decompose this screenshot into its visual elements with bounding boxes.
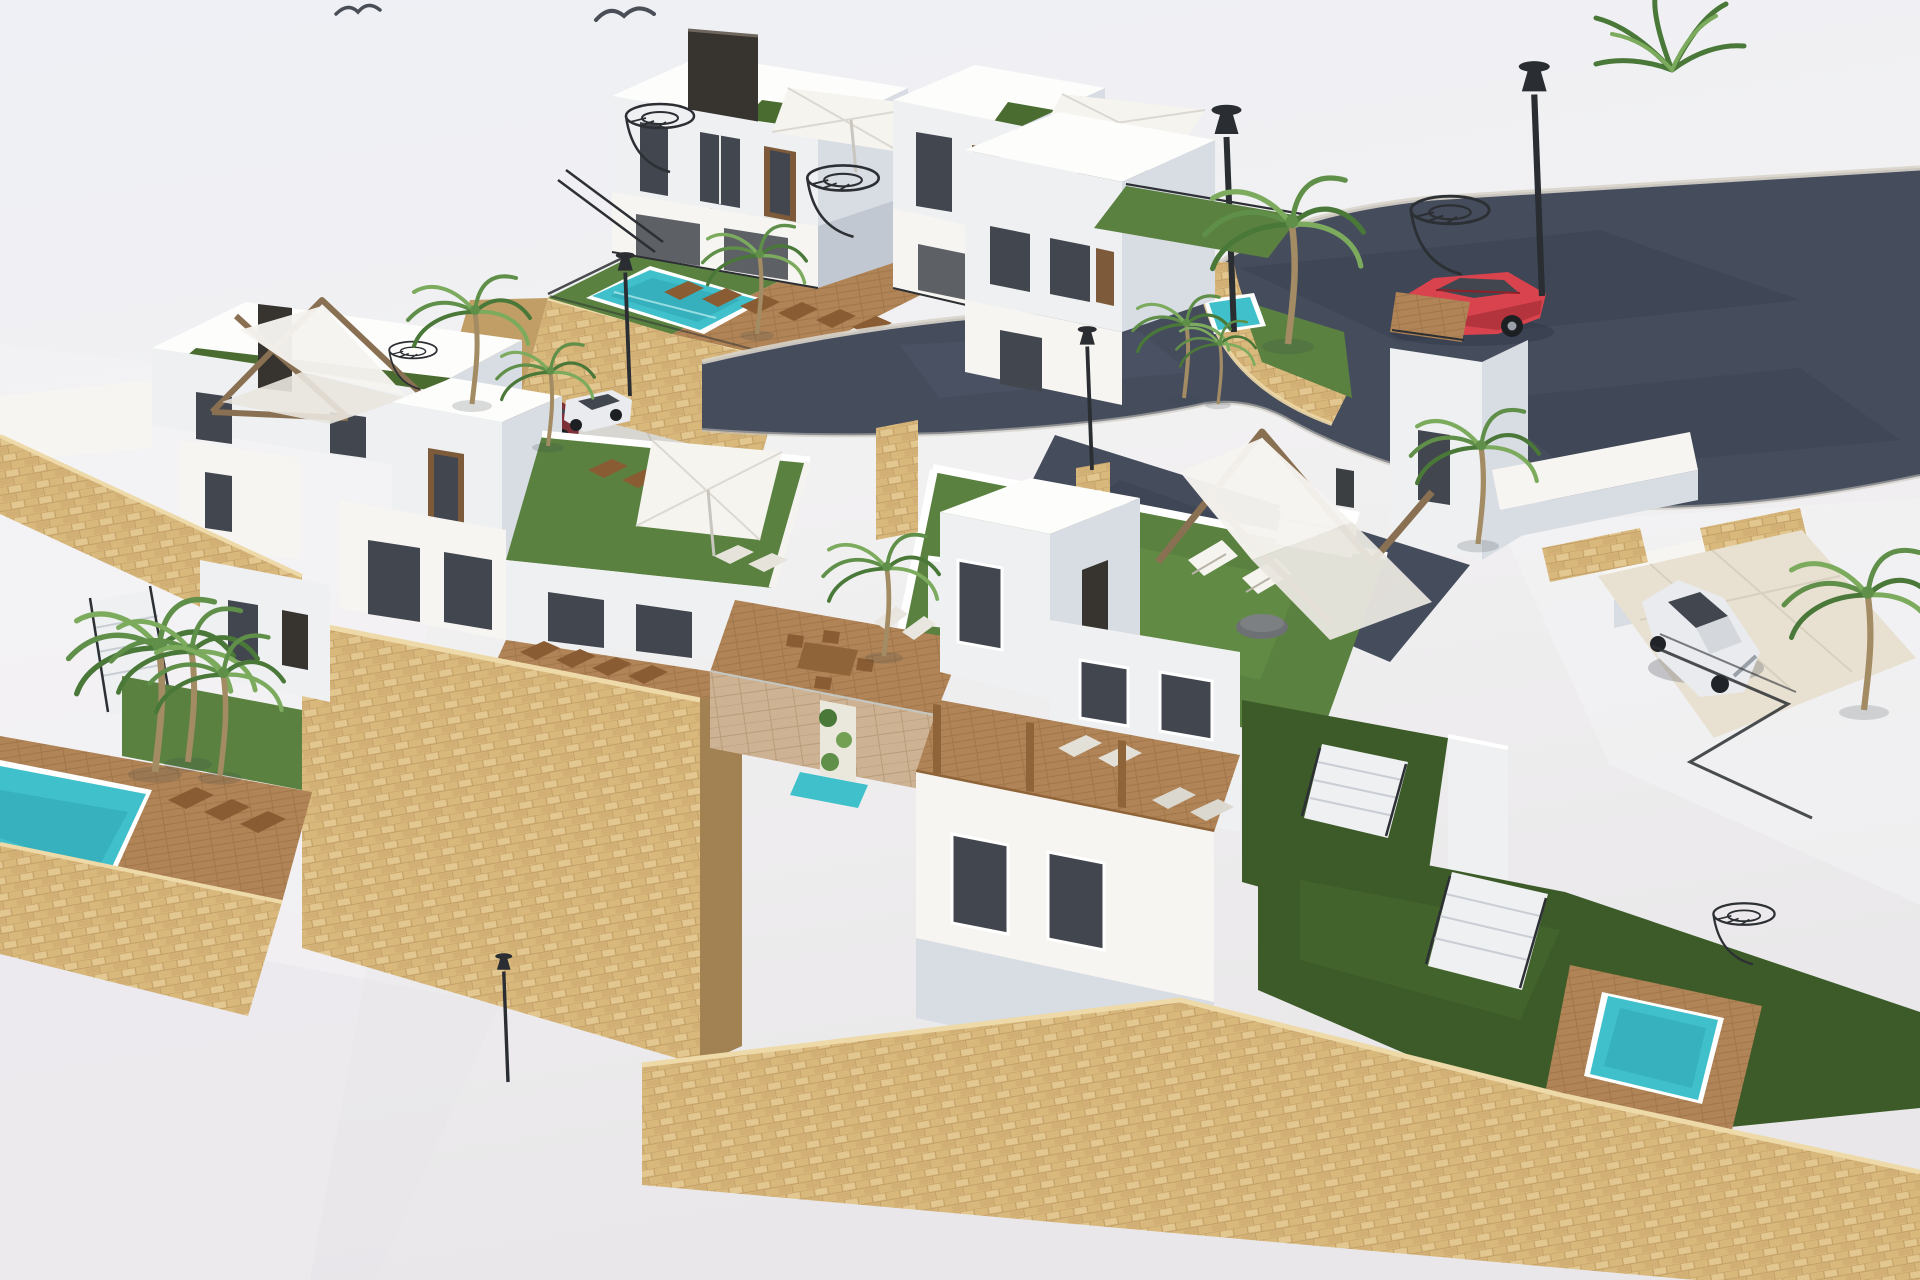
villa-garden-door <box>636 604 692 658</box>
building-a-panel <box>688 30 758 122</box>
dining-chair <box>786 634 804 648</box>
villa-front-window <box>368 540 420 622</box>
deck-pillar <box>933 704 941 774</box>
dining-chair <box>822 630 840 644</box>
building-c-window <box>990 226 1030 292</box>
red-car-hub <box>1508 322 1517 331</box>
architectural-render <box>0 0 1920 1280</box>
scene-svg <box>0 0 1920 1280</box>
villa-garden-door <box>548 592 604 648</box>
left-house-door <box>282 610 308 670</box>
building-c-low-door <box>1000 330 1042 392</box>
building-c-window <box>1050 238 1090 302</box>
garden-pouf-top <box>1240 614 1284 632</box>
left-villa-low-window <box>205 472 232 532</box>
villa-tower-window <box>434 454 458 526</box>
villa2-lower-window <box>1048 852 1104 950</box>
building-c-louvre <box>1096 248 1114 306</box>
villa2-wing-window <box>1080 660 1128 726</box>
waterfall-plant <box>819 709 837 727</box>
villa2-wing-window <box>1160 672 1212 740</box>
parked-coupe-wheel <box>570 419 582 431</box>
building-a-door-glass <box>770 150 790 216</box>
dining-chair <box>814 676 832 690</box>
waterfall-plant <box>836 732 852 748</box>
building-c-front <box>965 150 1122 332</box>
deck-pillar <box>1026 722 1034 792</box>
parked-coupe-wheel <box>610 409 622 421</box>
villa2-lower-window <box>952 834 1008 934</box>
bbq-chimney <box>1336 468 1354 508</box>
villa2-tower-window <box>958 560 1002 650</box>
stone-pillar <box>876 420 918 540</box>
render-viewport <box>0 0 1920 1280</box>
building-b-window <box>916 132 952 212</box>
waterfall-plant <box>821 753 839 771</box>
villa-front-window <box>444 552 492 630</box>
deck-pillar <box>1118 740 1126 808</box>
